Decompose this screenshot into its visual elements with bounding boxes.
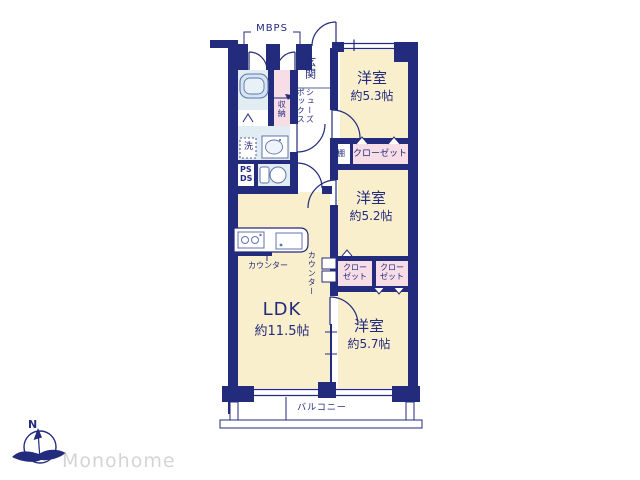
- pass-counter-label: カウンター: [307, 251, 316, 296]
- shoebox-label: シューズ ボックス: [296, 88, 314, 124]
- closet-53-label: クローゼット: [353, 149, 407, 159]
- laundry-label: 洗: [244, 142, 253, 152]
- compass-icon: [12, 428, 66, 463]
- ps-ds-label: PS DS: [240, 165, 252, 183]
- balcony-label: バルコニー: [297, 403, 347, 413]
- toilet-icon: [260, 167, 286, 183]
- ldk-label: LDK 約11.5帖: [255, 300, 310, 340]
- ldk-floor: [238, 192, 330, 388]
- mbps-label: MBPS: [256, 23, 288, 35]
- floorplan-image: MBPS 玄関 シューズ ボックス 収納 洗 PS DS 洋室 約5.3帖 棚 …: [0, 0, 640, 480]
- closet-left-label: クロー ゼット: [343, 263, 367, 281]
- closet-right-label: クロー ゼット: [380, 263, 404, 281]
- room-5-7-label: 洋室 約5.7帖: [347, 318, 390, 352]
- room-5-3-label: 洋室 約5.3帖: [350, 70, 393, 104]
- kitchen-counter-label: カウンター: [248, 261, 288, 270]
- storage-label: 収納: [277, 100, 286, 118]
- shoebox-cabinet: [274, 70, 290, 98]
- bathtub-icon: [240, 74, 268, 98]
- brand-logo-text: Monohome: [62, 451, 176, 473]
- shelf-label: 棚: [337, 149, 345, 158]
- genkan-label: 玄関: [303, 56, 316, 80]
- room-5-2-label: 洋室 約5.2帖: [349, 190, 392, 224]
- north-label: N: [28, 419, 37, 432]
- vanity-sink-icon: [262, 136, 288, 158]
